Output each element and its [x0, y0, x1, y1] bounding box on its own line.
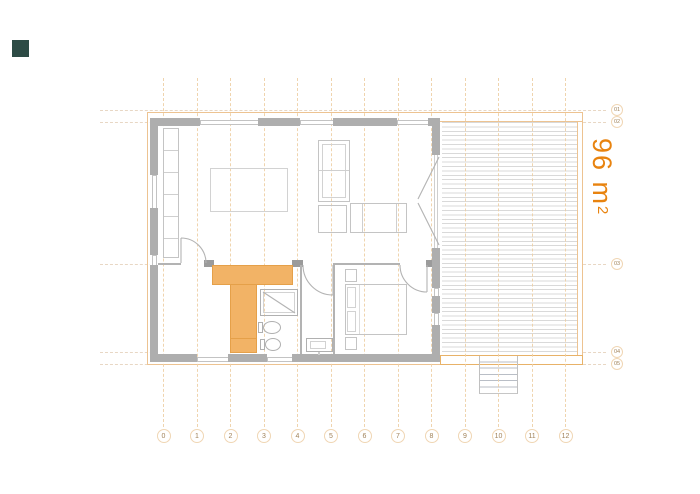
window-top-3 — [397, 120, 430, 125]
sofa-divider — [319, 170, 349, 171]
counter-divider — [164, 172, 178, 173]
grid-column-label-8: 8 — [425, 429, 439, 443]
entry-mat-line — [231, 338, 256, 339]
grid-column-line-7 — [398, 78, 399, 427]
grid-column-line-11 — [532, 78, 533, 427]
entry-corridor-highlight — [230, 285, 257, 353]
grid-column-label-10: 10 — [492, 429, 506, 443]
window-top-1 — [200, 120, 260, 125]
wall-bottom-1 — [150, 354, 197, 362]
sofa-unit-inner — [322, 144, 346, 198]
grid-column-label-9: 9 — [458, 429, 472, 443]
grid-column-label-12: 12 — [559, 429, 573, 443]
dining-table — [210, 168, 288, 212]
grid-column-label-1: 1 — [190, 429, 204, 443]
pillow-2 — [347, 311, 356, 332]
window-top-2 — [300, 120, 335, 125]
wall-right-2 — [432, 248, 440, 288]
interior-wall-hall-left — [158, 263, 181, 265]
grid-column-label-6: 6 — [358, 429, 372, 443]
window-left-1 — [152, 175, 157, 210]
grid-column-label-2: 2 — [224, 429, 238, 443]
washbasin-drain — [318, 352, 320, 355]
grid-column-label-0: 0 — [157, 429, 171, 443]
nightstand-top — [345, 269, 357, 282]
grid-column-label-11: 11 — [525, 429, 539, 443]
interior-wall-closet-right — [333, 265, 335, 354]
wall-right-1 — [432, 118, 440, 155]
blanket-fold-line — [359, 285, 360, 334]
wall-bottom-3 — [292, 354, 440, 362]
logo-mark — [12, 40, 29, 57]
grid-column-line-6 — [364, 78, 365, 427]
counter-divider — [164, 238, 178, 239]
grid-row-label-04: 04 — [611, 346, 623, 358]
grid-column-label-7: 7 — [391, 429, 405, 443]
glass-door-line-2 — [437, 155, 438, 248]
counter-divider — [164, 150, 178, 151]
grid-column-line-12 — [565, 78, 566, 427]
hallway-highlight — [212, 265, 293, 285]
counter-divider — [164, 216, 178, 217]
window-bottom-1 — [197, 357, 230, 362]
washbasin-inner — [310, 341, 326, 349]
area-exponent: 2 — [594, 206, 610, 216]
wall-right-3 — [432, 296, 440, 313]
wall-bottom-2 — [228, 354, 267, 362]
grid-column-line-1 — [197, 78, 198, 427]
grid-column-line-10 — [498, 78, 499, 427]
grid-row-label-03: 03 — [611, 258, 623, 270]
grid-column-line-5 — [331, 78, 332, 427]
wall-left-2 — [150, 208, 158, 255]
wall-stub-3 — [426, 260, 432, 267]
nightstand-bottom — [345, 337, 357, 350]
shower-inner — [263, 292, 295, 313]
wall-left-1 — [150, 118, 158, 175]
wall-left-3 — [150, 265, 158, 362]
chaise-divider — [362, 204, 363, 232]
bidet-bowl — [265, 338, 281, 351]
grid-column-line-4 — [297, 78, 298, 427]
toilet-bowl — [263, 321, 281, 334]
interior-wall-bedroom-top — [333, 263, 400, 265]
counter-divider — [164, 194, 178, 195]
pillow-1 — [347, 287, 356, 308]
area-value: 96 m — [587, 138, 617, 206]
interior-wall-bathroom-right — [300, 265, 302, 354]
grid-column-line-2 — [230, 78, 231, 427]
wall-top-3 — [333, 118, 397, 126]
grid-row-label-05: 05 — [611, 358, 623, 370]
chaise — [350, 203, 407, 233]
glass-door-line-1 — [434, 155, 435, 248]
grid-column-label-4: 4 — [291, 429, 305, 443]
deck-planks — [442, 122, 577, 352]
grid-column-label-3: 3 — [257, 429, 271, 443]
wall-top-2 — [258, 118, 300, 126]
grid-row-label-01: 01 — [611, 104, 623, 116]
area-label: 96 m2 — [586, 138, 617, 216]
grid-row-label-02: 02 — [611, 116, 623, 128]
grid-column-line-9 — [465, 78, 466, 427]
armchair — [318, 205, 347, 233]
grid-row-line-01 — [100, 110, 606, 111]
wall-top-1 — [152, 118, 200, 126]
chaise-divider — [396, 204, 397, 232]
floor-plan-canvas: 0123456789101112 0102030405 96 m2 — [0, 0, 700, 494]
grid-column-line-3 — [264, 78, 265, 427]
deck-right-edge — [577, 121, 578, 356]
window-bottom-2 — [267, 357, 294, 362]
grid-column-label-5: 5 — [324, 429, 338, 443]
